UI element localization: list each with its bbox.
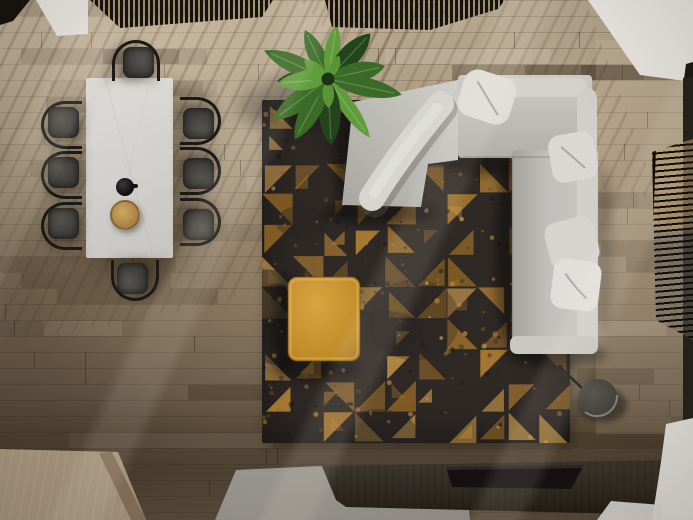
vignette [0, 0, 693, 520]
living-room-render: Top-down 3D render of a living room: lig… [0, 0, 693, 520]
